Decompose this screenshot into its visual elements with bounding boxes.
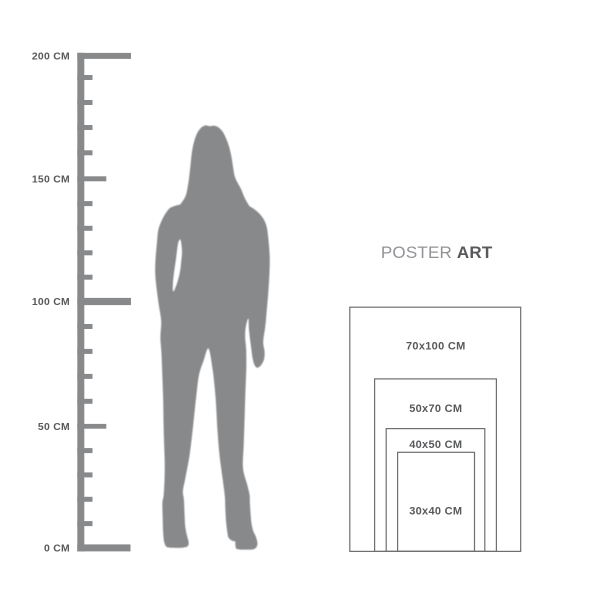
svg-text:50 CM: 50 CM (38, 422, 70, 433)
svg-text:0 CM: 0 CM (44, 544, 70, 555)
svg-text:30x40 CM: 30x40 CM (409, 506, 462, 518)
svg-text:100 CM: 100 CM (32, 297, 70, 308)
svg-text:150 CM: 150 CM (32, 174, 70, 185)
svg-text:50x70 CM: 50x70 CM (409, 403, 462, 415)
svg-text:200 CM: 200 CM (32, 52, 70, 63)
svg-text:POSTER ART: POSTER ART (381, 243, 493, 262)
svg-text:70x100 CM: 70x100 CM (406, 341, 466, 353)
svg-text:40x50 CM: 40x50 CM (409, 439, 462, 451)
